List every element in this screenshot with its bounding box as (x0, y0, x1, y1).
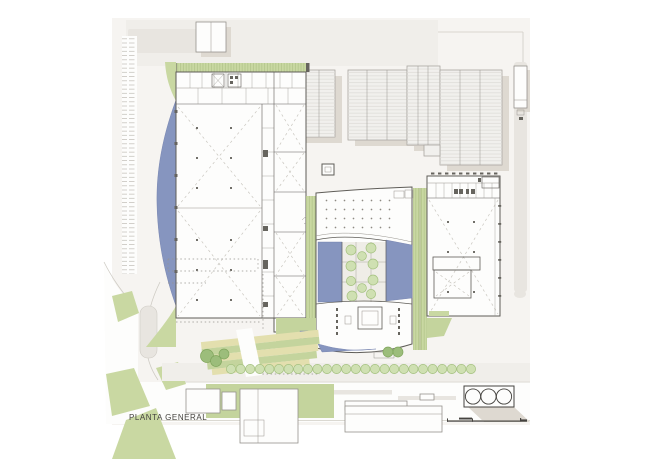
south-building-long (345, 406, 442, 432)
courtyard-pool-west (318, 242, 342, 302)
drawing-sheet: PLANTA GENERAL (0, 0, 650, 459)
east-strip-building (514, 66, 527, 108)
south-building-tall (240, 389, 298, 443)
traffic-island (140, 306, 157, 358)
site-plan-drawing (0, 0, 650, 459)
entry-plaza-dots (319, 196, 393, 234)
courtyard (318, 240, 412, 302)
plan-title: PLANTA GENERAL (129, 413, 207, 422)
east-building (427, 173, 501, 339)
kiosk (322, 164, 334, 175)
south-building-small (186, 389, 220, 413)
parking-strip (122, 36, 137, 274)
central-block (306, 187, 427, 358)
courtyard-pool-east (386, 240, 412, 301)
